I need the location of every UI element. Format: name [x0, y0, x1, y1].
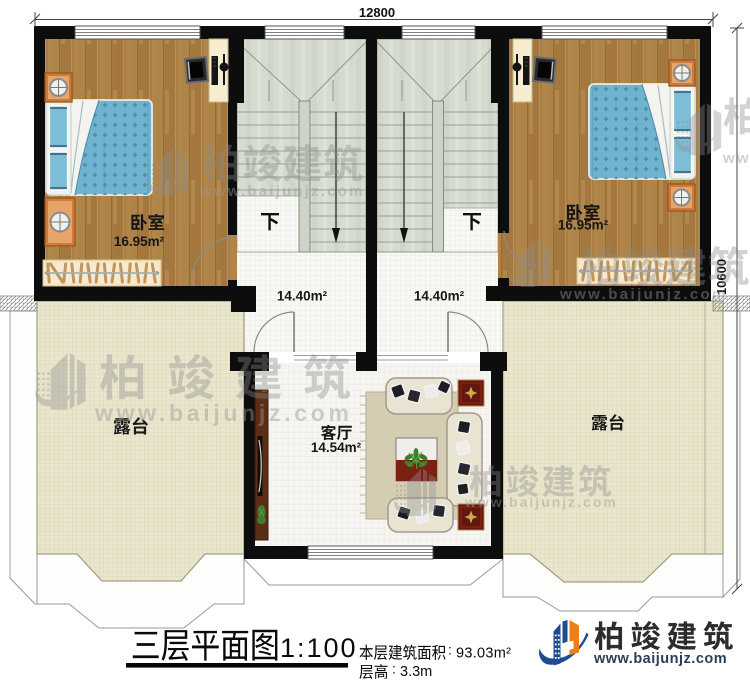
svg-text:16.95m²: 16.95m²	[558, 218, 609, 233]
svg-text:93.03m²: 93.03m²	[456, 646, 511, 662]
svg-text:www.baijunjz.com: www.baijunjz.com	[559, 286, 728, 303]
svg-text:3.3m: 3.3m	[400, 664, 432, 680]
svg-text::: :	[392, 661, 396, 677]
svg-text:14.54m²: 14.54m²	[311, 440, 362, 455]
svg-text::: :	[448, 642, 452, 658]
svg-text:12800: 12800	[359, 5, 395, 20]
svg-text:1:100: 1:100	[280, 633, 358, 663]
svg-text:14.40m²: 14.40m²	[414, 289, 465, 304]
svg-text:www.baijunjz.com: www.baijunjz.com	[199, 183, 365, 200]
svg-text:16.95m²: 16.95m²	[114, 234, 165, 249]
svg-text:www.baijunjz.com: www.baijunjz.com	[94, 400, 353, 426]
svg-text:www.baijunjz.com: www.baijunjz.com	[722, 150, 750, 167]
svg-text:www.baijunjz.com: www.baijunjz.com	[593, 651, 727, 667]
svg-text:14.40m²: 14.40m²	[277, 289, 328, 304]
svg-text:www.baijunjz.com: www.baijunjz.com	[464, 494, 618, 510]
